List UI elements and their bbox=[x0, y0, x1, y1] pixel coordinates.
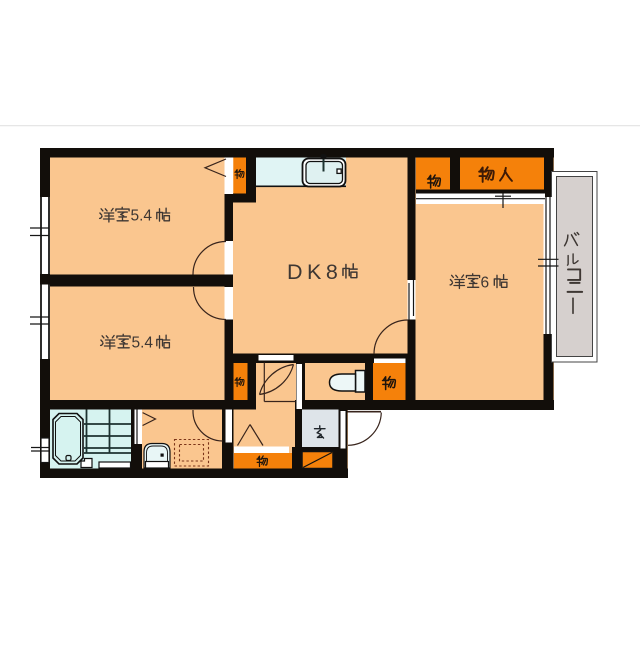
svg-text:5.4: 5.4 bbox=[132, 335, 154, 352]
svg-text:5.4: 5.4 bbox=[131, 208, 153, 225]
svg-text:6: 6 bbox=[481, 275, 490, 292]
svg-text:DK8: DK8 bbox=[287, 260, 342, 284]
